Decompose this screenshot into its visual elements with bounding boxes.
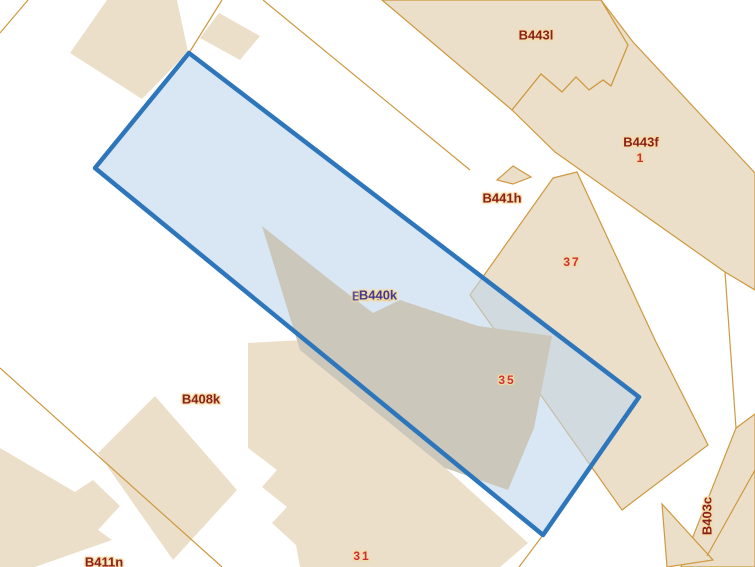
parcel-tiny-near-B441h[interactable] [497, 166, 531, 184]
cadastral-map-viewport[interactable]: B443lB443f1B441h37B440kB440k35B408k31B41… [0, 0, 755, 567]
building-bottom-left-b411n [0, 448, 120, 567]
map-canvas[interactable] [0, 0, 755, 567]
boundary-line-top-left-corner [0, 0, 28, 33]
boundary-line-right-steep [725, 272, 736, 428]
building-diamond-b408k [98, 396, 237, 560]
